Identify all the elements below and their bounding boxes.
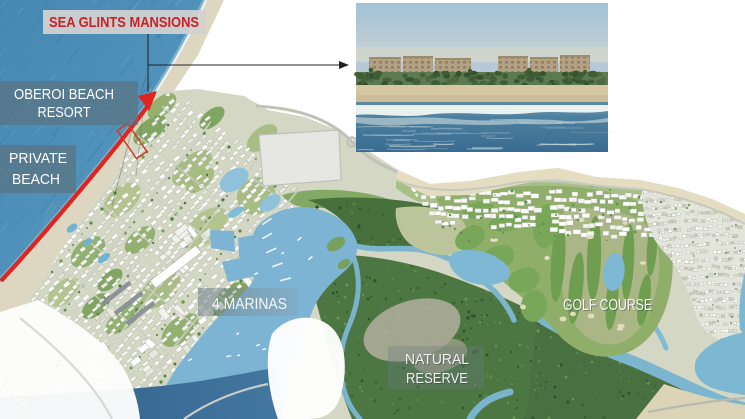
svg-text:GOLF COURSE: GOLF COURSE: [563, 297, 652, 314]
svg-text:PRIVATE: PRIVATE: [9, 151, 67, 167]
svg-text:RESERVE: RESERVE: [406, 371, 468, 387]
svg-text:OBEROI BEACH: OBEROI BEACH: [14, 87, 114, 103]
svg-text:4 MARINAS: 4 MARINAS: [212, 296, 287, 313]
svg-text:RESORT: RESORT: [38, 105, 91, 121]
svg-text:BEACH: BEACH: [12, 172, 60, 188]
svg-text:SEA GLINTS MANSIONS: SEA GLINTS MANSIONS: [49, 14, 199, 31]
svg-text:NATURAL: NATURAL: [405, 352, 469, 368]
